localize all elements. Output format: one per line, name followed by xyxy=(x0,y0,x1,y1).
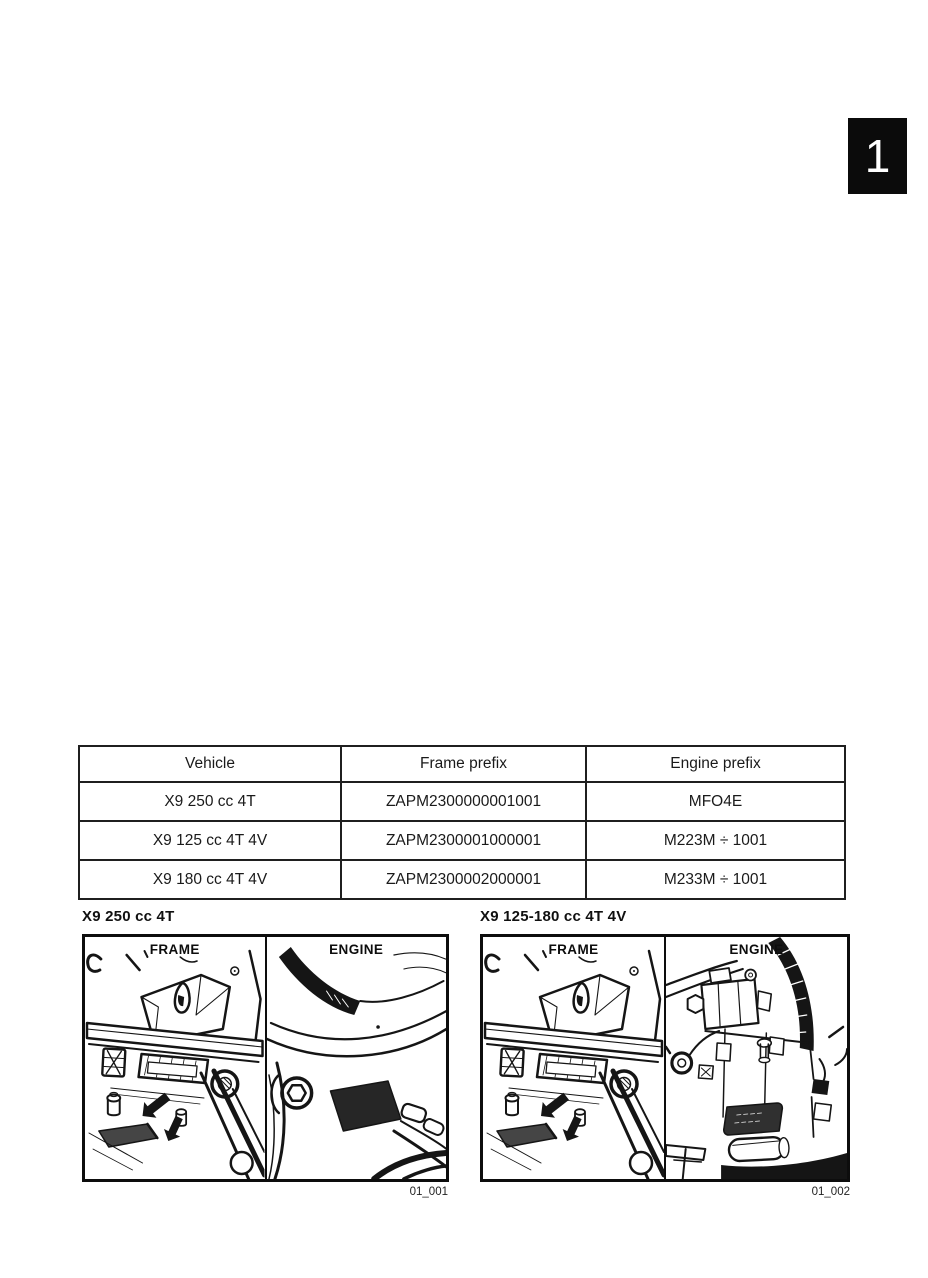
engine-250-illustration xyxy=(267,937,447,1179)
cell-frame-prefix: ZAPM2300002000001 xyxy=(341,860,586,899)
engine-label: ENGINE xyxy=(666,942,847,957)
figure-1-caption: 01_001 xyxy=(82,1186,448,1198)
figure-2-frame-panel: FRAME xyxy=(483,937,664,1179)
frame-label: FRAME xyxy=(85,942,265,957)
figure-2-title: X9 125-180 cc 4T 4V xyxy=(480,908,626,925)
cell-vehicle: X9 250 cc 4T xyxy=(79,782,341,821)
figure-2-box: FRAME ENGINE xyxy=(480,934,850,1182)
header-vehicle: Vehicle xyxy=(79,746,341,782)
cell-engine-prefix: MFO4E xyxy=(586,782,845,821)
engine-125-180-illustration xyxy=(666,937,847,1179)
table-row: X9 125 cc 4T 4V ZAPM2300001000001 M223M … xyxy=(79,821,845,860)
cell-vehicle: X9 180 cc 4T 4V xyxy=(79,860,341,899)
frame-label: FRAME xyxy=(483,942,664,957)
manual-page: 1 Vehicle Frame prefix Engine prefix X9 … xyxy=(0,0,928,1278)
figure-2-engine-panel: ENGINE xyxy=(664,937,847,1179)
cell-engine-prefix: M233M ÷ 1001 xyxy=(586,860,845,899)
vehicle-id-table: Vehicle Frame prefix Engine prefix X9 25… xyxy=(78,745,846,900)
frame-illustration xyxy=(483,937,664,1179)
figure-2-caption: 01_002 xyxy=(480,1186,850,1198)
cell-engine-prefix: M223M ÷ 1001 xyxy=(586,821,845,860)
figure-1-title: X9 250 cc 4T xyxy=(82,908,174,925)
frame-illustration xyxy=(85,937,265,1179)
chapter-number: 1 xyxy=(865,133,891,179)
figure-1-engine-panel: ENGINE xyxy=(265,937,447,1179)
engine-label: ENGINE xyxy=(267,942,447,957)
cell-vehicle: X9 125 cc 4T 4V xyxy=(79,821,341,860)
cell-frame-prefix: ZAPM2300001000001 xyxy=(341,821,586,860)
figure-1-frame-panel: FRAME xyxy=(85,937,265,1179)
table-row: X9 180 cc 4T 4V ZAPM2300002000001 M233M … xyxy=(79,860,845,899)
header-frame-prefix: Frame prefix xyxy=(341,746,586,782)
chapter-tab: 1 xyxy=(848,118,907,194)
cell-frame-prefix: ZAPM2300000001001 xyxy=(341,782,586,821)
header-engine-prefix: Engine prefix xyxy=(586,746,845,782)
figure-1-box: FRAME ENGINE xyxy=(82,934,449,1182)
table-header-row: Vehicle Frame prefix Engine prefix xyxy=(79,746,845,782)
table-row: X9 250 cc 4T ZAPM2300000001001 MFO4E xyxy=(79,782,845,821)
